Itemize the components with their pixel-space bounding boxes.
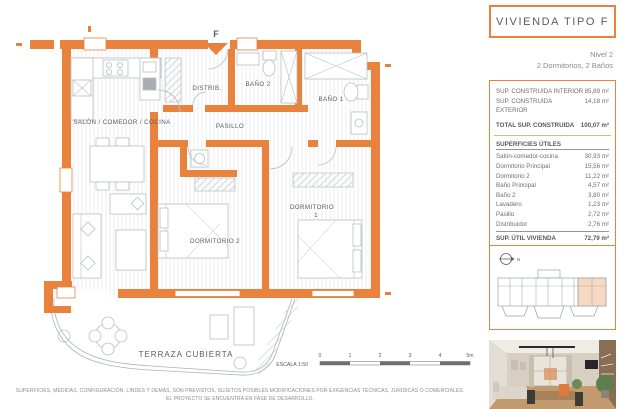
keyplan-drawing: N: [490, 246, 614, 328]
area-row: Baño Principal 4,57 m²: [496, 181, 609, 191]
area-row: Dormitorio 2 11,22 m²: [496, 172, 609, 182]
keyplan-box: N: [489, 245, 616, 330]
scale-tick: 5m: [466, 353, 473, 359]
scale-tick: 0: [319, 353, 322, 359]
level-label: Nivel 2: [420, 50, 613, 61]
room-label-bano2: BAÑO 2: [245, 81, 270, 88]
room-label-pasillo: PASILLO: [216, 123, 244, 130]
scale-tick: 4: [439, 353, 442, 359]
scale-tick: 1: [349, 353, 352, 359]
scale-tick: 3: [409, 353, 412, 359]
disclaimer-line1: SUPERFICIES, MEDIDAS, CONFIGURACIÓN, LIN…: [0, 388, 480, 396]
utiles-header: SUPERFICIES ÚTILES: [496, 141, 609, 150]
divider: [494, 135, 611, 136]
room-label-terraza: TERRAZA CUBIERTA: [139, 350, 234, 359]
scale-label: ESCALA 1:50: [276, 362, 308, 368]
area-row: Lavadero 1,23 m²: [496, 200, 609, 210]
title-box: VIVIENDA TIPO F: [489, 5, 616, 38]
area-row: Baño 2 3,80 m²: [496, 191, 609, 201]
area-total-row: TOTAL SUP. CONSTRUIDA 100,07 m²: [496, 121, 609, 131]
room-label-dorm1-num: 1: [314, 212, 318, 219]
room-label-distrib: DISTRIB.: [192, 85, 221, 92]
area-row: SUP. CONSTRUIDA INTERIOR 85,89 m²: [496, 87, 609, 97]
north-label: N: [517, 257, 520, 262]
util-vivienda-row: SUP. ÚTIL VIVIENDA 72,79 m²: [496, 231, 609, 244]
room-label-bano1: BAÑO 1: [318, 96, 343, 103]
north-icon: [499, 254, 514, 265]
page-title: VIVIENDA TIPO F: [496, 16, 609, 28]
area-row: Pasillo 2,72 m²: [496, 210, 609, 220]
floor-plan: F: [0, 0, 480, 385]
area-row: Distribuidor 2,76 m²: [496, 220, 609, 230]
level-subtitle: 2 Dormitorios, 2 Baños: [420, 61, 613, 72]
disclaimer-line2: EL PROYECTO SE ENCUENTRA EN FASE DE DESA…: [0, 396, 480, 404]
scale-tick: 2: [379, 353, 382, 359]
room-label-salon: SALÓN / COMEDOR / COCINA: [73, 119, 171, 126]
area-row: Salón-comedor-cocina 30,93 m²: [496, 152, 609, 162]
scale-bar: ESCALA 1:50 0 1 2 3 4 5m: [276, 353, 473, 368]
level-block: Nivel 2 2 Dormitorios, 2 Baños: [420, 50, 614, 72]
entrance-label: F: [213, 29, 219, 39]
room-label-dorm1: DORMITORIO: [290, 204, 334, 211]
area-row: SUP. CONSTRUIDA EXTERIOR 14,18 m²: [496, 97, 609, 116]
disclaimer: SUPERFICIES, MEDIDAS, CONFIGURACIÓN, LIN…: [0, 388, 480, 403]
room-label-dorm2: DORMITORIO 2: [190, 238, 240, 245]
area-row: Dormitorio Principal 15,56 m²: [496, 162, 609, 172]
interior-photo: [489, 340, 616, 409]
